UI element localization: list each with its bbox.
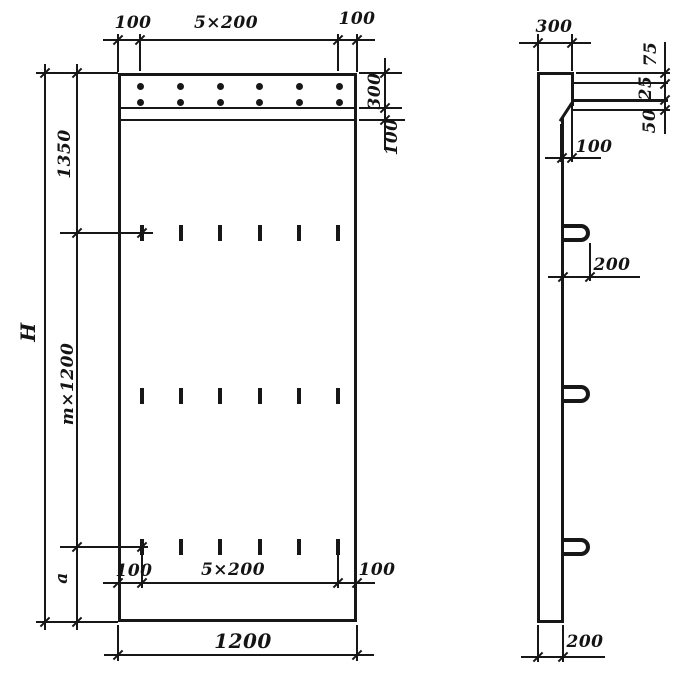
dim-label: 25 [636,76,656,101]
slot-tick [179,539,183,555]
slot-tick [258,539,262,555]
dim-label: a [52,572,72,584]
anchor-dot-row [137,99,343,106]
slot-tick [258,388,262,404]
slot-tick [179,388,183,404]
dim-label: 100 [116,561,153,581]
band-line-upper [118,107,357,109]
dim-label: 300 [536,17,573,37]
slot-tick [336,388,340,404]
dim-label: 200 [594,255,631,275]
anchor-dot [217,83,224,90]
extension-line [571,106,573,162]
dim-label: 100 [115,13,152,33]
dim-line-head [664,42,666,134]
band-line-lower [118,119,357,121]
anchor-dot [256,83,263,90]
dim-label: 100 [382,119,402,156]
dim-line-bottom [104,654,374,656]
slot-tick [179,225,183,241]
dim-label: 100 [359,560,396,580]
dim-line-overall-height [44,64,46,630]
dim-line-head-width [519,42,591,44]
dim-label: 300 [365,73,385,110]
slot-tick [336,225,340,241]
dim-label: 5×200 [194,13,258,33]
dim-label: 50 [640,109,660,134]
anchor-dot [336,99,343,106]
slot-tick-row [140,539,340,555]
anchor-dot [296,99,303,106]
anchor-dot [177,83,184,90]
hook-loop [562,538,590,556]
slot-tick [218,388,222,404]
slot-tick [218,225,222,241]
anchor-dot [177,99,184,106]
slot-tick-row [140,225,340,241]
anchor-dot [137,99,144,106]
slot-tick [336,539,340,555]
slot-tick [218,539,222,555]
dim-label: 100 [576,137,613,157]
dim-label: H [16,322,40,341]
slot-tick [258,225,262,241]
profile-left-face [537,73,540,622]
technical-drawing: 100 5×200 100 300 100 H 1350 m×1200 a [0,0,700,700]
profile-top-edge [537,72,574,75]
slot-tick [297,539,301,555]
anchor-dot [336,83,343,90]
extension-line [576,72,670,74]
anchor-dot [217,99,224,106]
anchor-dot [296,83,303,90]
dim-label: 5×200 [201,560,265,580]
slot-tick [297,225,301,241]
slot-tick-row [140,388,340,404]
dim-label: m×1200 [58,343,78,426]
hook-loop [562,224,590,242]
profile-bottom-edge [537,620,564,623]
dim-label: 75 [641,42,661,67]
hook-loop [562,385,590,403]
dim-label: 100 [339,9,376,29]
slot-tick [297,388,301,404]
dim-label: 200 [567,632,604,652]
anchor-dot [137,83,144,90]
slot-tick [140,388,144,404]
dim-label: 1350 [55,129,75,178]
dim-label: 1200 [214,629,272,653]
anchor-dot-row [137,83,343,90]
anchor-dot [256,99,263,106]
